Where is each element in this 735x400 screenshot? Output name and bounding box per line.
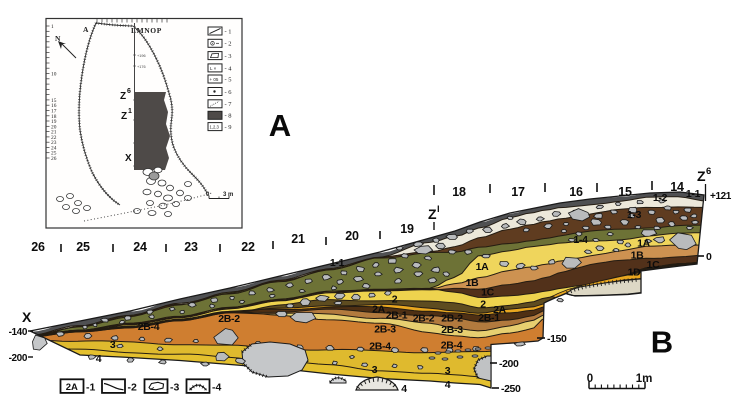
svg-text:2B-4: 2B-4 [369,341,391,353]
svg-text:+176: +176 [137,65,146,69]
svg-text:- 8: - 8 [225,113,232,120]
svg-text:2B-4: 2B-4 [441,340,463,352]
svg-text:1B: 1B [631,250,645,262]
svg-text:10: 10 [51,72,57,78]
svg-text:X: X [125,153,132,164]
svg-text:+ 05: + 05 [210,77,219,82]
svg-text:14: 14 [670,180,684,194]
svg-text:2B-3: 2B-3 [374,324,396,336]
svg-text:N: N [55,34,61,43]
svg-text:1C: 1C [647,259,661,271]
svg-text:1: 1 [51,24,54,30]
svg-text:A: A [269,108,291,143]
svg-text:-200: -200 [9,353,28,364]
svg-text:LMNOP: LMNOP [131,26,162,35]
svg-text:1A: 1A [476,261,490,273]
svg-text:2B-1: 2B-1 [478,312,500,324]
svg-text:1m: 1m [636,373,653,385]
svg-text:19: 19 [400,222,414,236]
svg-text:A: A [83,25,89,34]
svg-text:2B-4: 2B-4 [138,321,160,333]
svg-text:1D: 1D [628,267,642,279]
svg-text:2B-2: 2B-2 [218,313,240,325]
svg-text:X: X [22,309,32,325]
svg-text:+196: +196 [137,54,146,58]
svg-text:-1: -1 [86,382,95,394]
svg-text:Z: Z [121,111,127,122]
svg-text:1-4: 1-4 [573,234,588,246]
svg-text:-140: -140 [9,327,28,338]
svg-text:-250: -250 [501,383,521,395]
svg-text:4: 4 [401,383,407,395]
svg-text:3: 3 [110,339,116,351]
svg-text:1B: 1B [466,277,480,289]
svg-text:2: 2 [480,299,486,311]
svg-text:6: 6 [127,88,131,95]
svg-text:1-1: 1-1 [686,188,701,200]
svg-text:l: l [437,204,440,215]
svg-text:2B-2: 2B-2 [441,313,463,325]
svg-text:- 5: - 5 [225,76,232,83]
svg-text:- 9: - 9 [225,124,232,131]
svg-text:15: 15 [618,185,632,199]
svg-text:1A: 1A [637,238,651,250]
svg-text:3 m: 3 m [223,192,233,198]
svg-text:1-3: 1-3 [627,209,642,221]
svg-text:18: 18 [452,185,466,199]
svg-text:26: 26 [31,240,45,254]
svg-text:+121: +121 [710,191,732,202]
svg-text:L ×: L × [210,66,217,71]
svg-text:- 2: - 2 [225,41,232,48]
svg-text:20: 20 [345,229,359,243]
svg-text:24: 24 [133,240,147,254]
svg-text:2: 2 [392,294,398,306]
svg-text:2A: 2A [372,304,386,316]
svg-text:1,2,3: 1,2,3 [210,124,220,129]
svg-text:B: B [651,325,673,360]
svg-text:4: 4 [445,379,451,391]
svg-text:25: 25 [76,240,90,254]
svg-text:3: 3 [372,364,378,376]
svg-text:Z: Z [697,168,706,184]
svg-text:17: 17 [511,185,525,199]
svg-text:1-1: 1-1 [330,257,345,269]
svg-text:4: 4 [96,353,102,365]
svg-text:21: 21 [291,232,305,246]
svg-text:16: 16 [569,185,583,199]
svg-text:6: 6 [706,166,711,177]
svg-text:2B-1: 2B-1 [386,310,408,322]
svg-text:-2: -2 [128,382,137,394]
svg-text:1: 1 [128,108,132,115]
svg-text:22: 22 [241,240,255,254]
svg-text:1-2: 1-2 [653,192,668,204]
svg-text:- 6: - 6 [225,89,233,96]
svg-text:-200: -200 [499,358,519,370]
svg-text:2B-2: 2B-2 [413,313,435,325]
svg-text:26: 26 [51,156,57,162]
svg-text:Z: Z [120,91,126,102]
svg-text:1C: 1C [481,287,495,299]
svg-text:Z: Z [428,206,437,222]
svg-text:-150: -150 [547,333,567,345]
svg-text:0: 0 [587,373,593,385]
svg-text:-4: -4 [212,382,221,394]
svg-text:- 4: - 4 [225,65,233,72]
svg-text:- 3: - 3 [225,53,232,60]
svg-text:-3: -3 [170,382,179,394]
svg-text:3: 3 [445,365,451,377]
svg-text:- 1: - 1 [225,28,232,35]
svg-text:2B-3: 2B-3 [441,324,463,336]
svg-text:0: 0 [706,251,712,263]
svg-text:23: 23 [184,240,198,254]
svg-text:- 7: - 7 [225,101,233,108]
svg-text:2A: 2A [66,382,78,393]
